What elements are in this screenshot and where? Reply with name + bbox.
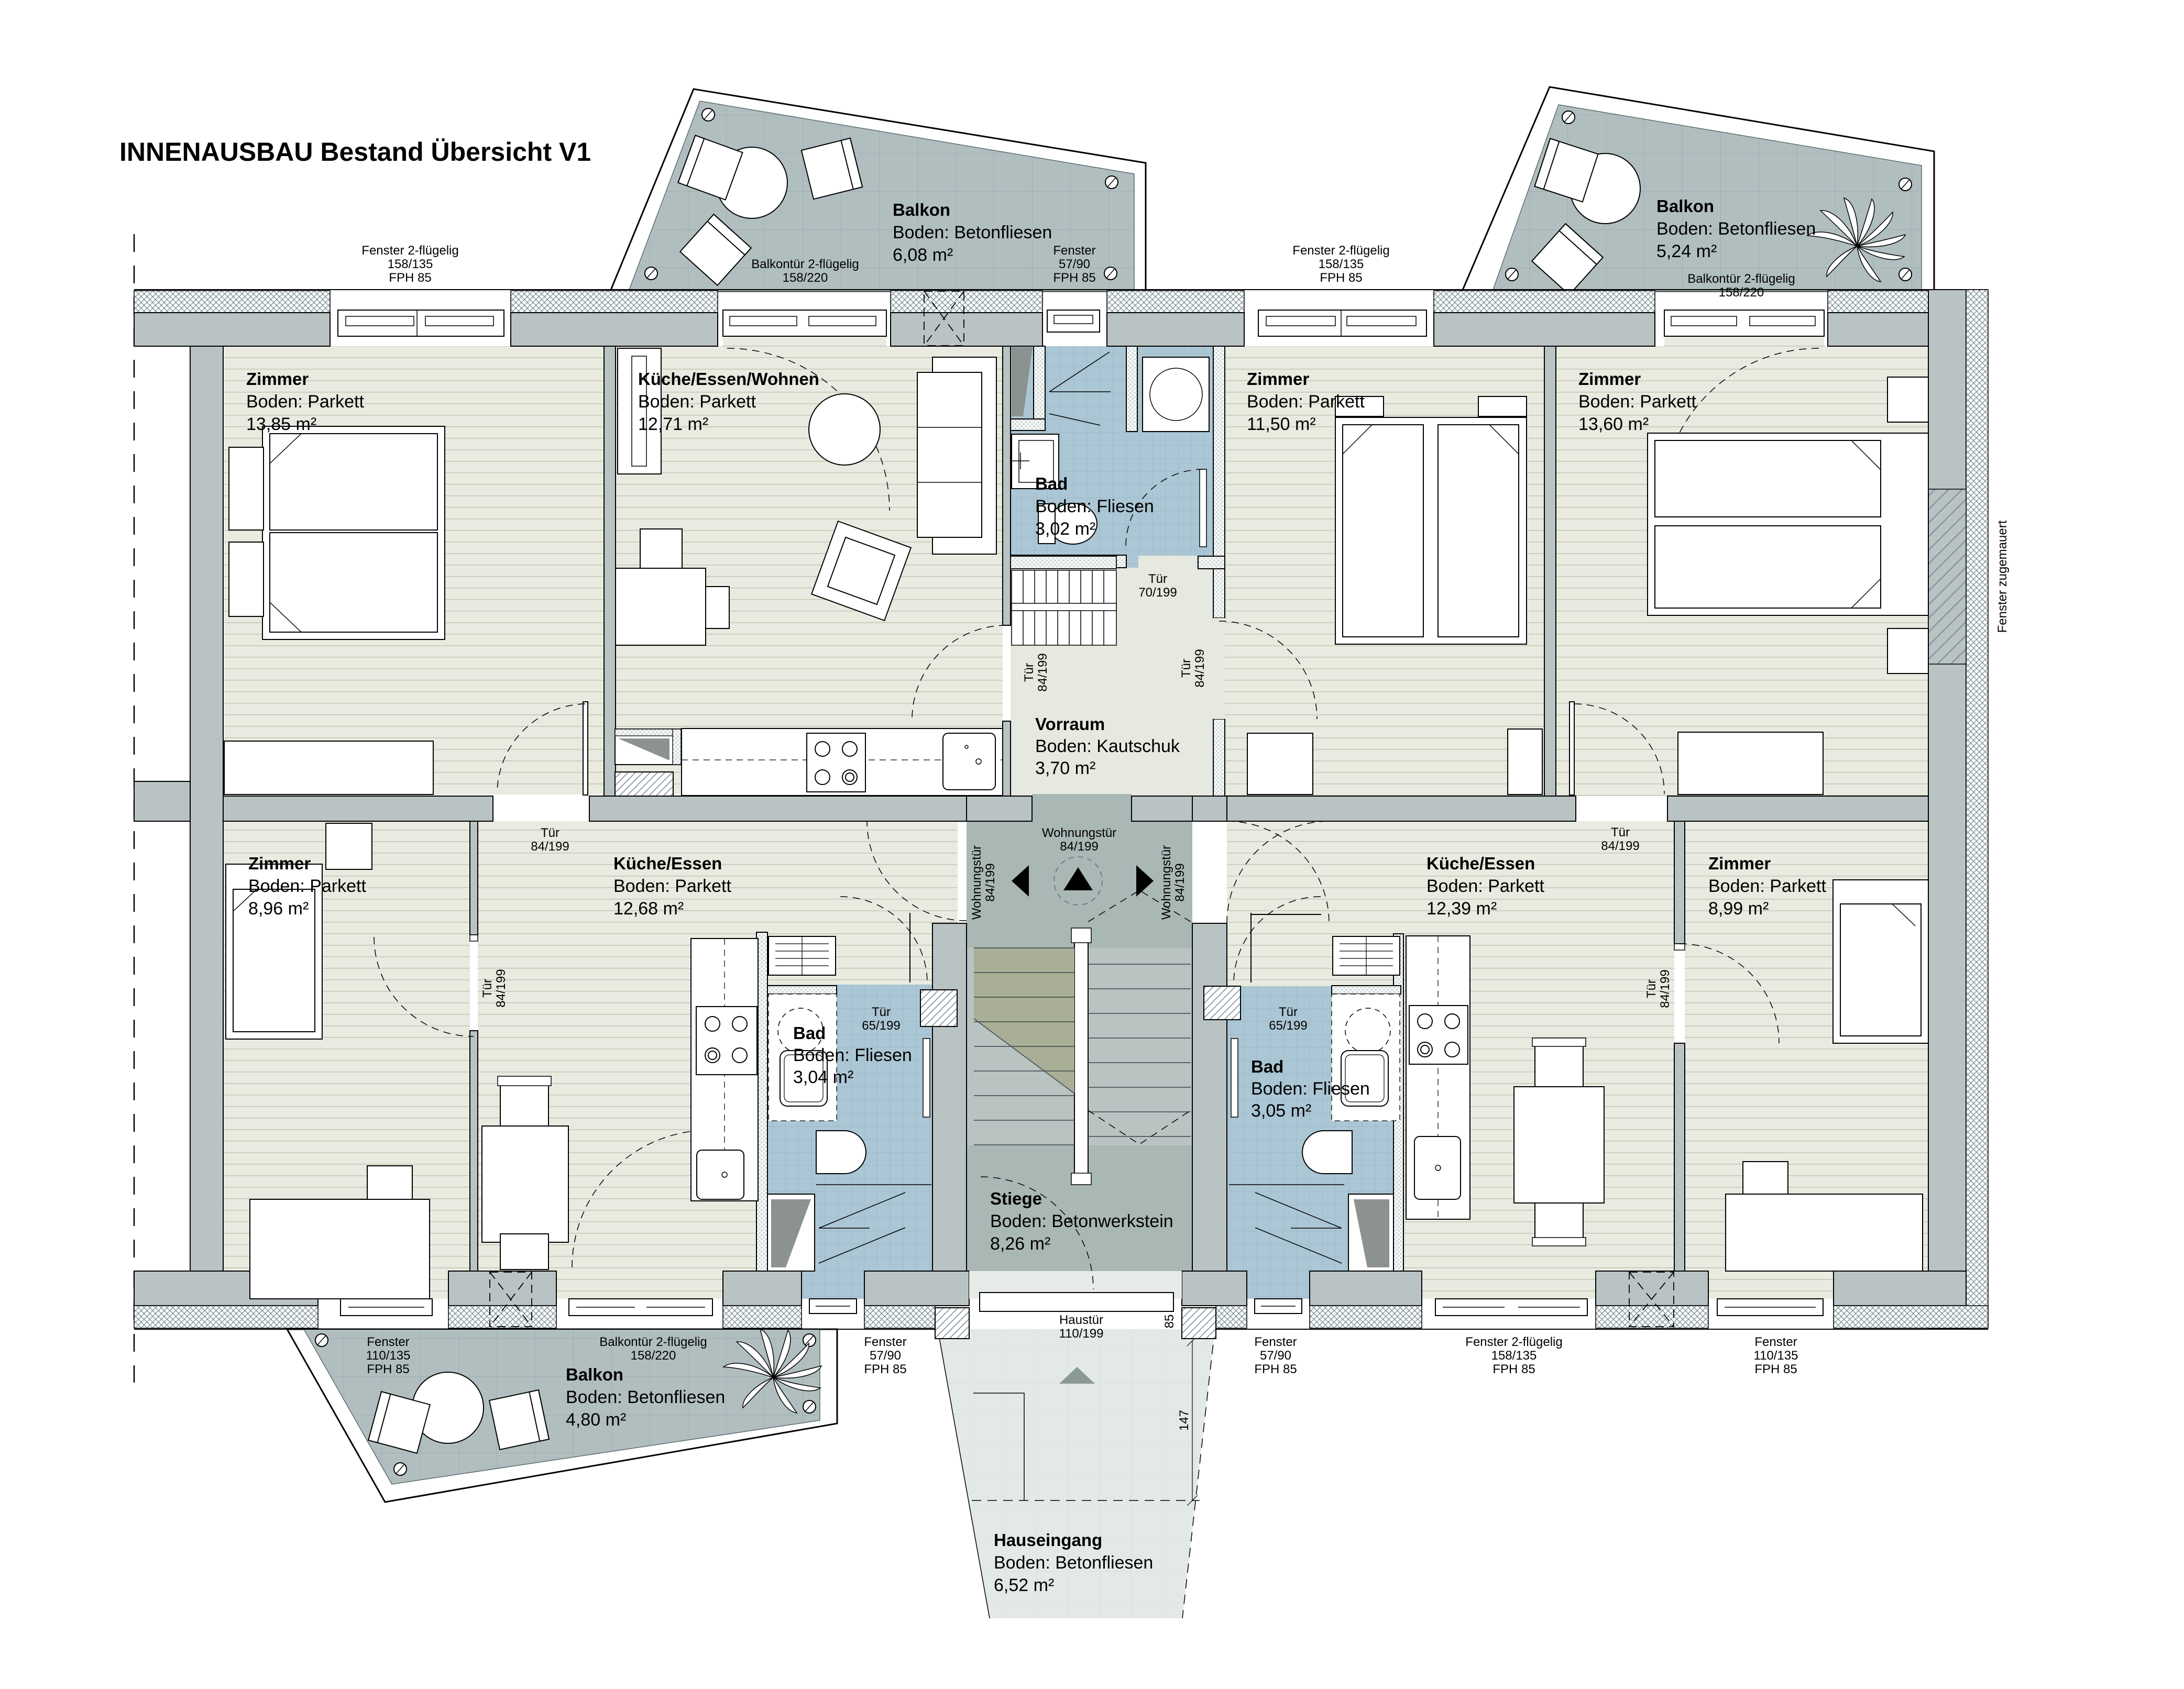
svg-text:84/199: 84/199	[494, 969, 508, 1007]
svg-text:84/199: 84/199	[1060, 840, 1098, 854]
svg-text:158/135: 158/135	[1319, 257, 1364, 271]
svg-text:11,50 m²: 11,50 m²	[1247, 414, 1316, 434]
svg-text:INNENAUSBAU Bestand Übersicht: INNENAUSBAU Bestand Übersicht V1	[119, 137, 591, 167]
svg-text:Tür: Tür	[1279, 1005, 1298, 1019]
svg-text:110/135: 110/135	[1754, 1349, 1798, 1363]
svg-text:12,68 m²: 12,68 m²	[613, 899, 684, 919]
svg-text:Zimmer: Zimmer	[246, 369, 309, 389]
svg-text:Fenster 2-flügelig: Fenster 2-flügelig	[1292, 244, 1389, 258]
svg-text:Boden: Fliesen: Boden: Fliesen	[1035, 496, 1154, 516]
svg-text:Balkontür 2-flügelig: Balkontür 2-flügelig	[1687, 272, 1795, 286]
svg-text:Boden: Parkett: Boden: Parkett	[246, 392, 364, 412]
svg-text:12,39 m²: 12,39 m²	[1426, 899, 1497, 919]
svg-text:147: 147	[1177, 1410, 1191, 1431]
svg-text:Fenster 2-flügelig: Fenster 2-flügelig	[1465, 1335, 1562, 1349]
svg-text:Zimmer: Zimmer	[1247, 369, 1309, 389]
svg-text:84/199: 84/199	[1658, 969, 1672, 1008]
svg-text:8,96 m²: 8,96 m²	[248, 899, 309, 919]
svg-text:FPH 85: FPH 85	[1320, 271, 1362, 285]
svg-text:3,70 m²: 3,70 m²	[1035, 758, 1095, 778]
svg-text:Vorraum: Vorraum	[1035, 714, 1105, 734]
svg-text:5,24 m²: 5,24 m²	[1656, 241, 1717, 261]
svg-text:Balkon: Balkon	[566, 1365, 623, 1384]
svg-text:4,80 m²: 4,80 m²	[566, 1410, 626, 1430]
svg-text:Fenster: Fenster	[367, 1335, 409, 1349]
svg-text:Fenster: Fenster	[1254, 1335, 1297, 1349]
svg-text:Zimmer: Zimmer	[248, 854, 311, 873]
svg-text:Boden: Parkett: Boden: Parkett	[248, 876, 366, 896]
svg-text:3,04 m²: 3,04 m²	[793, 1067, 853, 1087]
svg-text:84/199: 84/199	[1173, 863, 1187, 901]
svg-text:Boden: Betonfliesen: Boden: Betonfliesen	[893, 223, 1052, 242]
svg-text:13,85 m²: 13,85 m²	[246, 414, 316, 434]
svg-text:Bad: Bad	[1251, 1057, 1283, 1076]
svg-text:Balkontür 2-flügelig: Balkontür 2-flügelig	[751, 257, 859, 271]
svg-text:6,52 m²: 6,52 m²	[994, 1575, 1054, 1595]
svg-text:Tür: Tür	[541, 826, 559, 840]
svg-text:57/90: 57/90	[870, 1349, 901, 1363]
svg-text:Bad: Bad	[1035, 474, 1068, 493]
svg-text:Balkon: Balkon	[893, 200, 950, 219]
svg-text:Küche/Essen: Küche/Essen	[613, 854, 722, 873]
svg-text:Wohnungstür: Wohnungstür	[1042, 826, 1116, 840]
svg-text:Boden: Fliesen: Boden: Fliesen	[1251, 1079, 1370, 1099]
svg-text:Küche/Essen: Küche/Essen	[1426, 854, 1535, 873]
svg-text:3,05 m²: 3,05 m²	[1251, 1101, 1311, 1121]
svg-text:Boden: Kautschuk: Boden: Kautschuk	[1035, 736, 1180, 756]
svg-text:8,26 m²: 8,26 m²	[990, 1234, 1050, 1254]
svg-text:Boden: Parkett: Boden: Parkett	[613, 876, 731, 896]
svg-text:Tür: Tür	[1644, 979, 1659, 998]
svg-text:Tür: Tür	[480, 979, 495, 998]
svg-text:110/199: 110/199	[1059, 1327, 1104, 1341]
svg-text:FPH 85: FPH 85	[1754, 1362, 1797, 1376]
svg-text:Boden: Parkett: Boden: Parkett	[638, 392, 756, 412]
svg-text:84/199: 84/199	[1193, 649, 1207, 687]
svg-text:FPH 85: FPH 85	[864, 1362, 906, 1376]
svg-text:Tür: Tür	[1611, 825, 1630, 840]
svg-text:84/199: 84/199	[1036, 653, 1050, 691]
svg-text:84/199: 84/199	[983, 863, 997, 901]
svg-text:Boden: Betonwerkstein: Boden: Betonwerkstein	[990, 1211, 1173, 1231]
svg-text:Wohnungstür: Wohnungstür	[1159, 845, 1173, 920]
svg-text:84/199: 84/199	[531, 840, 569, 854]
svg-text:158/135: 158/135	[1491, 1349, 1537, 1363]
svg-text:Boden: Betonfliesen: Boden: Betonfliesen	[1656, 219, 1816, 239]
svg-text:65/199: 65/199	[1269, 1019, 1307, 1033]
svg-text:3,02 m²: 3,02 m²	[1035, 519, 1095, 539]
svg-text:6,08 m²: 6,08 m²	[893, 245, 953, 265]
svg-text:Balkontür 2-flügelig: Balkontür 2-flügelig	[599, 1335, 707, 1349]
svg-text:Boden: Betonfliesen: Boden: Betonfliesen	[994, 1553, 1153, 1573]
svg-text:Küche/Essen/Wohnen: Küche/Essen/Wohnen	[638, 369, 819, 389]
svg-text:FPH 85: FPH 85	[367, 1362, 409, 1376]
svg-text:57/90: 57/90	[1260, 1349, 1291, 1363]
svg-text:158/220: 158/220	[631, 1349, 676, 1363]
svg-text:Haustür: Haustür	[1059, 1313, 1103, 1327]
svg-text:Balkon: Balkon	[1656, 196, 1714, 216]
svg-text:Boden: Betonfliesen: Boden: Betonfliesen	[566, 1387, 725, 1407]
svg-text:Bad: Bad	[793, 1023, 826, 1043]
svg-text:Fenster: Fenster	[1053, 244, 1095, 258]
svg-text:Tür: Tür	[872, 1005, 891, 1019]
svg-text:Boden: Parkett: Boden: Parkett	[1578, 392, 1696, 412]
svg-text:Wohnungstür: Wohnungstür	[970, 845, 984, 920]
svg-text:Fenster zugemauert: Fenster zugemauert	[1995, 520, 2010, 633]
svg-text:Boden: Fliesen: Boden: Fliesen	[793, 1045, 912, 1065]
svg-text:65/199: 65/199	[862, 1019, 900, 1033]
svg-text:57/90: 57/90	[1059, 257, 1090, 271]
svg-text:FPH 85: FPH 85	[1492, 1362, 1535, 1376]
svg-text:158/220: 158/220	[783, 271, 828, 285]
svg-text:Stiege: Stiege	[990, 1189, 1042, 1208]
svg-text:Zimmer: Zimmer	[1578, 369, 1641, 389]
svg-text:Boden: Parkett: Boden: Parkett	[1426, 876, 1544, 896]
svg-text:158/135: 158/135	[388, 257, 433, 271]
svg-text:Tür: Tür	[1022, 663, 1036, 682]
svg-text:158/220: 158/220	[1719, 285, 1764, 300]
svg-text:8,99 m²: 8,99 m²	[1708, 899, 1769, 919]
svg-text:FPH 85: FPH 85	[1254, 1362, 1297, 1376]
svg-text:85: 85	[1162, 1315, 1177, 1329]
svg-text:Hauseingang: Hauseingang	[994, 1530, 1102, 1550]
svg-text:FPH 85: FPH 85	[1053, 271, 1095, 285]
svg-text:Fenster: Fenster	[1754, 1335, 1797, 1349]
svg-text:110/135: 110/135	[366, 1349, 411, 1363]
svg-text:Zimmer: Zimmer	[1708, 854, 1771, 873]
svg-text:13,60 m²: 13,60 m²	[1578, 414, 1649, 434]
svg-text:Tür: Tür	[1179, 659, 1193, 678]
svg-text:FPH 85: FPH 85	[389, 271, 431, 285]
svg-text:Boden: Parkett: Boden: Parkett	[1708, 876, 1826, 896]
svg-text:84/199: 84/199	[1601, 839, 1639, 853]
svg-text:12,71 m²: 12,71 m²	[638, 414, 708, 434]
svg-text:70/199: 70/199	[1138, 586, 1177, 600]
svg-text:Tür: Tür	[1148, 572, 1167, 586]
svg-text:Boden: Parkett: Boden: Parkett	[1247, 392, 1365, 412]
svg-text:Fenster: Fenster	[864, 1335, 906, 1349]
svg-text:Fenster 2-flügelig: Fenster 2-flügelig	[361, 244, 458, 258]
